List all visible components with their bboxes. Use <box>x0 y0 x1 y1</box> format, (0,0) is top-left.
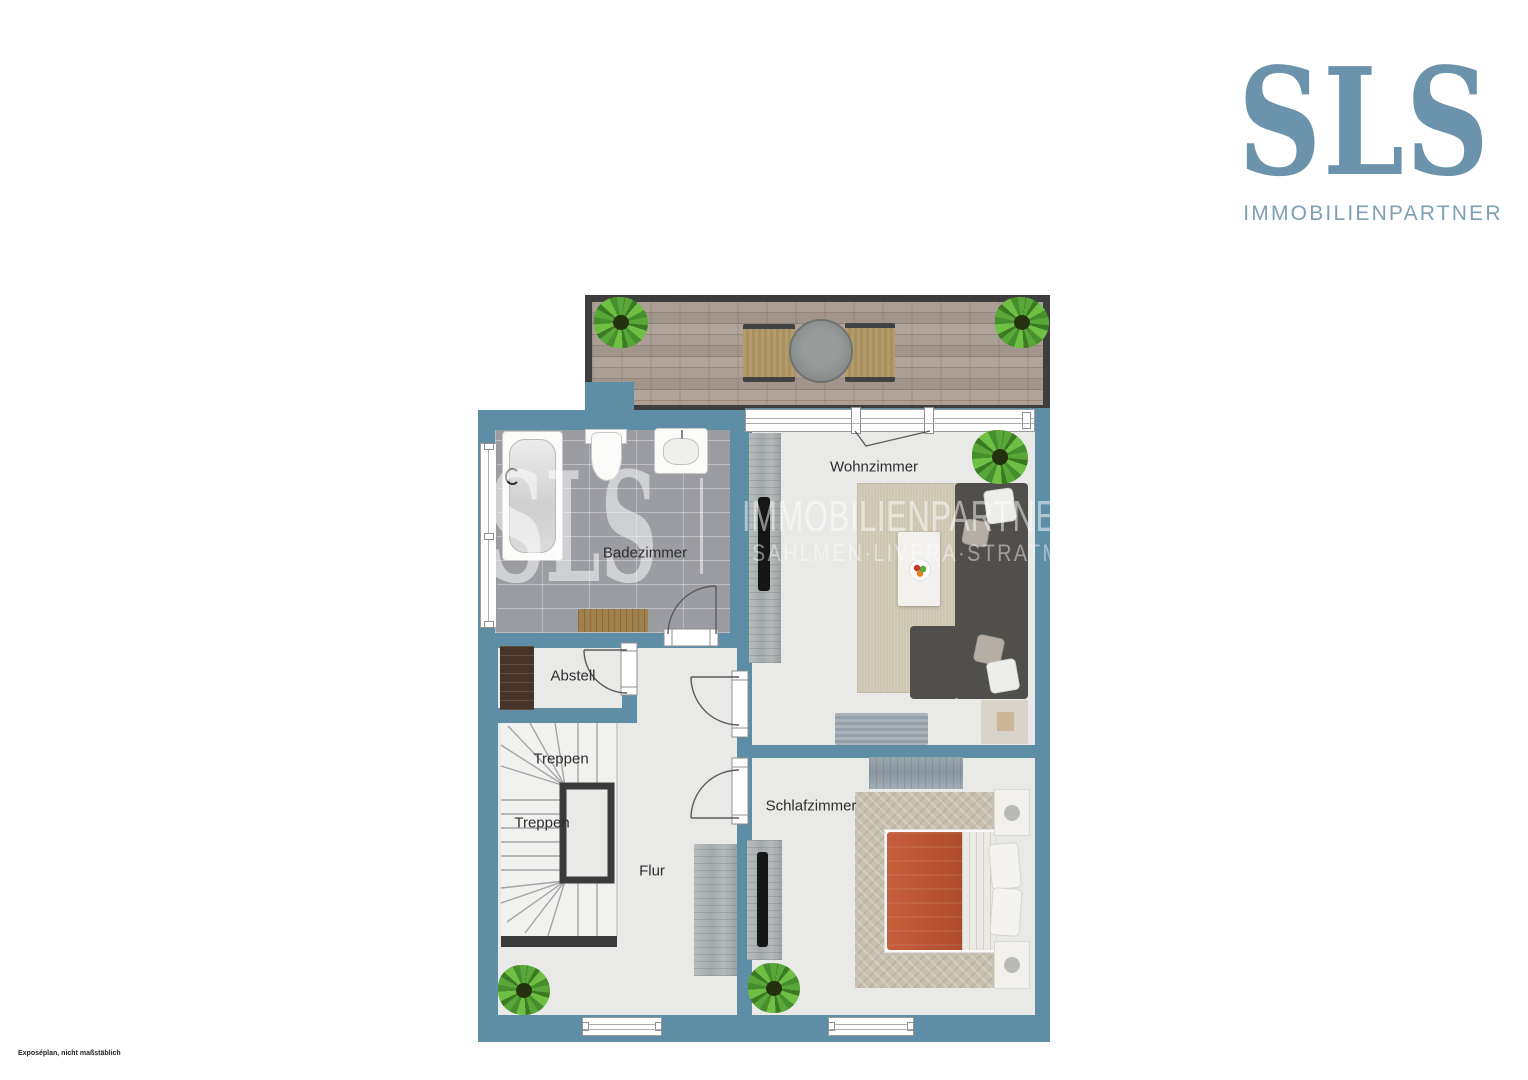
room-label-abstell: Abstell <box>550 668 595 685</box>
company-logo-subtitle: IMMOBILIENPARTNER <box>1240 202 1506 226</box>
room-label-flur: Flur <box>639 863 665 880</box>
room-label-schlafzimmer: Schlafzimmer <box>766 798 857 815</box>
room-label-badezimmer: Badezimmer <box>603 545 687 562</box>
disclaimer-text: Exposéplan, nicht maßstäblich <box>18 1050 121 1057</box>
floorplan-page: SLS IMMOBILIENPARTNER <box>0 0 1528 1080</box>
room-label-treppen-lower: Treppen <box>514 815 569 832</box>
company-logo: SLS <box>1238 48 1503 198</box>
room-label-wohnzimmer: Wohnzimmer <box>830 459 918 476</box>
room-label-treppen-upper: Treppen <box>533 751 588 768</box>
